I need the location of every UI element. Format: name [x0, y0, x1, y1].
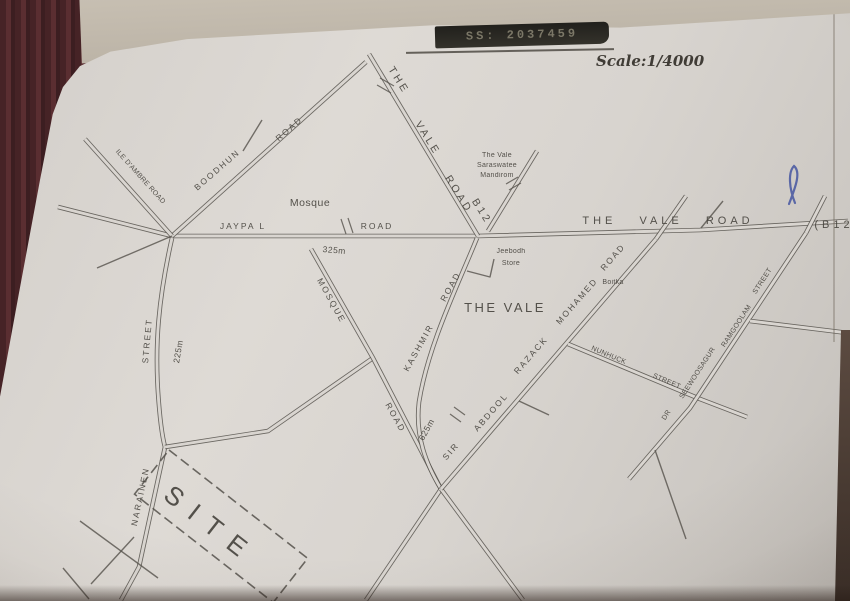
- road-seewoosagur-ramgoolam: [629, 233, 806, 479]
- label-mosque-place: Mosque: [290, 197, 330, 209]
- label-mohamed: MOHAMED: [554, 276, 600, 327]
- jeebodh-store-mark: [467, 259, 494, 277]
- map-paper-sheet: SITE THE VALE ROAD B12 BOODHUN ROAD ILE …: [0, 0, 850, 601]
- seewoosagur-south-stub: [655, 450, 686, 539]
- label-vale-diag-b12: B12: [469, 196, 494, 226]
- sir-abdool-side-stub: [519, 401, 549, 415]
- label-distance-225m: 225m: [171, 339, 185, 364]
- label-dr: DR: [661, 409, 673, 422]
- label-boodhun: BOODHUN: [192, 147, 242, 192]
- road-street-west: [121, 238, 172, 600]
- road-cross-southeast: [441, 489, 523, 600]
- road-mosque: [311, 249, 441, 489]
- label-vale-diag-road: ROAD: [442, 173, 475, 215]
- label-street-west: STREET: [140, 318, 154, 364]
- site-location-map: SITE THE VALE ROAD B12 BOODHUN ROAD ILE …: [0, 0, 850, 601]
- label-store: Store: [502, 260, 520, 267]
- boodhun-north-stub: [243, 120, 262, 151]
- label-mandiram-1: The Vale: [482, 152, 512, 159]
- road-boodhun: [172, 62, 366, 236]
- label-boodhun-road: ROAD: [273, 114, 304, 143]
- bottom-shadow: [0, 585, 850, 601]
- label-kashmir: KASHMIR: [401, 322, 435, 373]
- label-distance-325m: 325m: [322, 244, 346, 256]
- label-mandiram-2: Saraswatee: [477, 162, 517, 169]
- label-boitka: Boitka: [602, 279, 623, 286]
- paper-crease: [833, 0, 835, 342]
- label-jeebodh: Jeebodh: [497, 248, 526, 255]
- gate-tick-marks: [341, 78, 521, 422]
- site-label: SITE: [158, 479, 263, 570]
- label-vale-east: THE VALE ROAD: [582, 215, 753, 227]
- scale-note: Scale:1/4000: [596, 52, 766, 70]
- label-mandiram-3: Mandirom: [480, 172, 514, 179]
- road-cross-southwest: [366, 489, 441, 600]
- label-jaypal: JAYPA L: [220, 221, 266, 231]
- label-jaypal-road: ROAD: [361, 221, 394, 231]
- road-site-access: [165, 358, 373, 447]
- label-sir-abdool-road: ROAD: [598, 241, 627, 272]
- label-the-vale-area: THE VALE: [464, 300, 546, 315]
- blue-pen-mark: [789, 166, 797, 204]
- label-seewoosagur-street: STREET: [752, 267, 774, 296]
- road-ile-dambre: [85, 139, 172, 236]
- label-ramgoolam: RAMGOOLAM: [720, 304, 753, 349]
- west-junction-arm: [97, 236, 172, 268]
- label-sir: SIR: [440, 440, 461, 462]
